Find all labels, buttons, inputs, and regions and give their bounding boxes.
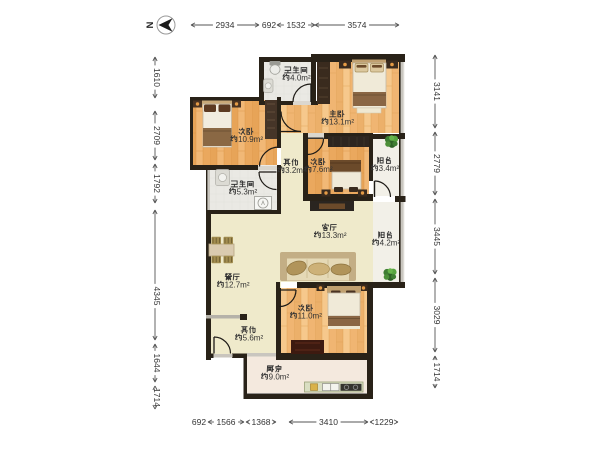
svg-text:7.6m²: 7.6m² [312,165,333,174]
svg-text:4345: 4345 [152,287,162,306]
svg-text:2709: 2709 [152,126,162,145]
svg-text:2779: 2779 [432,154,442,173]
svg-text:5.3m²: 5.3m² [237,187,258,196]
svg-text:1714: 1714 [152,388,162,407]
svg-text:1566: 1566 [217,417,236,427]
svg-text:4.0m²: 4.0m² [290,73,311,82]
svg-text:1610: 1610 [152,68,162,87]
svg-text:3.4m²: 3.4m² [379,164,400,173]
svg-text:1714: 1714 [432,363,442,382]
svg-text:3029: 3029 [432,306,442,325]
svg-text:1229: 1229 [375,417,394,427]
svg-text:4.2m²: 4.2m² [380,238,401,247]
svg-text:1644: 1644 [152,354,162,373]
svg-text:11.0m²: 11.0m² [298,311,323,320]
svg-text:692: 692 [192,417,206,427]
svg-text:3410: 3410 [319,417,338,427]
svg-text:1368: 1368 [252,417,271,427]
svg-text:N: N [145,21,156,28]
svg-text:1792: 1792 [152,174,162,193]
svg-text:3141: 3141 [432,82,442,101]
svg-text:1532: 1532 [287,20,306,30]
svg-text:12.7m²: 12.7m² [225,280,250,289]
svg-text:10.9m²: 10.9m² [238,135,263,144]
svg-text:2934: 2934 [216,20,235,30]
svg-text:3.2m²: 3.2m² [285,166,306,175]
svg-text:692: 692 [262,20,276,30]
svg-text:13.1m²: 13.1m² [329,117,354,126]
svg-text:9.0m²: 9.0m² [269,372,290,381]
svg-text:3574: 3574 [348,20,367,30]
svg-text:13.3m²: 13.3m² [322,231,347,240]
svg-text:5.6m²: 5.6m² [243,333,264,342]
svg-text:3445: 3445 [432,227,442,246]
